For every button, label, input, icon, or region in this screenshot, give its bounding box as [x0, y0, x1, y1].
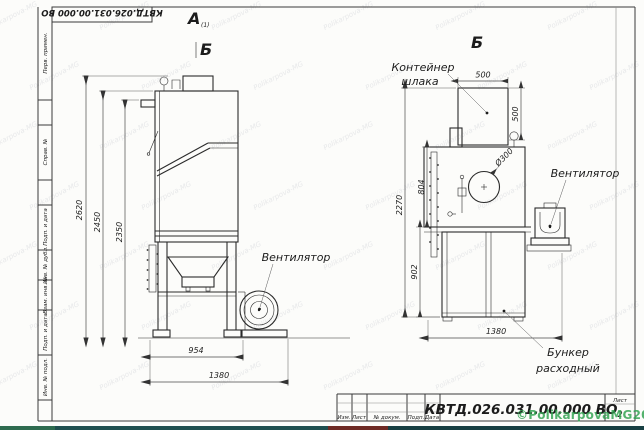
valve-top	[160, 77, 168, 85]
stamp-col-ndokum: № докум.	[372, 415, 400, 421]
view-marks: А (1) Б Б	[186, 9, 483, 59]
fan-label-left: Вентилятор	[262, 251, 331, 264]
valve-top-right	[510, 132, 518, 140]
foot-pad	[224, 330, 241, 337]
fan-mount	[531, 238, 569, 245]
inclined-chute	[157, 143, 208, 171]
hole-diameter-label: Ø300	[492, 146, 515, 169]
dim-height-inner: 2350	[115, 222, 124, 242]
dim-height-outer: 2620	[75, 200, 84, 220]
sidebar-gost-labels: Перв. примен. Справ. № Подп. и дата Инв.…	[43, 32, 49, 396]
top-stamp: КВТД.026.031.00.000 ВО	[41, 7, 162, 22]
sheet-frame	[38, 7, 635, 421]
side-pipe	[141, 100, 155, 107]
foot-pad	[153, 330, 170, 337]
fan-base	[242, 330, 287, 337]
sidebar-label: Инв. № подл.	[43, 358, 49, 396]
sheet-label: Лист	[612, 398, 628, 404]
dim-side-width-total: 1380	[486, 327, 506, 336]
feed-hopper	[442, 232, 525, 317]
dim-width-body: 954	[188, 346, 203, 355]
sidebar-label: Подп. и дата	[43, 208, 49, 246]
lever-handle	[149, 131, 158, 153]
dim-hopper-height: 902	[410, 264, 419, 279]
stamp-col-izm: Изм.	[338, 415, 351, 421]
hopper-outlet	[182, 277, 214, 287]
stamp-col-podp: Подп.	[408, 415, 425, 421]
machine-body-side	[424, 147, 525, 227]
dim-height-mid: 2450	[93, 212, 102, 232]
feed-hopper-label-1: Бункер	[547, 346, 589, 359]
bolted-flange-side	[431, 152, 437, 257]
sidebar-label: Перв. примен.	[43, 32, 49, 74]
slag-container-label-2: шлака	[401, 75, 438, 88]
photo-edge-strip	[0, 426, 644, 430]
feed-hopper-label-2: расходный	[535, 362, 600, 375]
front-view-machine	[138, 76, 350, 338]
fan-unit-side	[535, 208, 565, 238]
stamp-col-list: Лист	[351, 415, 367, 421]
hopper-funnel	[168, 257, 228, 277]
slag-container	[458, 88, 508, 145]
chimney	[450, 128, 462, 147]
sidebar-label: Подп. и дата	[43, 313, 49, 351]
bolted-flange	[149, 245, 156, 292]
dim-body-height: 804	[417, 179, 426, 194]
view-b-right-label: Б	[471, 33, 483, 52]
dimensions-side-view: 500 500 2270 804 902 1380	[395, 71, 562, 343]
view-b-left-label: Б	[200, 40, 212, 59]
dim-width-total: 1380	[209, 371, 229, 380]
copyright-watermark: ©PolikarpovaMG2021	[516, 408, 644, 422]
fan-label-right: Вентилятор	[551, 167, 620, 180]
side-view-machine	[424, 88, 571, 321]
sidebar-label: Взам. инв. №	[43, 276, 49, 314]
drawing-sheet: Polikarpova-MGPolikarpova-MGPolikarpova-…	[0, 0, 644, 430]
slag-container-label-1: Контейнер	[392, 61, 455, 74]
dim-container-width: 500	[475, 71, 490, 80]
drawing-canvas: Перв. примен. Справ. № Подп. и дата Инв.…	[0, 0, 644, 430]
cabinet-body	[155, 91, 238, 242]
view-a-label: А	[186, 9, 200, 28]
sidebar-label: Справ. №	[43, 138, 49, 165]
top-stamp-code: КВТД.026.031.00.000 ВО	[41, 7, 162, 17]
view-a-subscript: (1)	[201, 22, 210, 29]
dim-container-height: 500	[511, 106, 520, 121]
exhaust-duct-top	[183, 76, 213, 91]
dim-total-height: 2270	[395, 195, 404, 215]
